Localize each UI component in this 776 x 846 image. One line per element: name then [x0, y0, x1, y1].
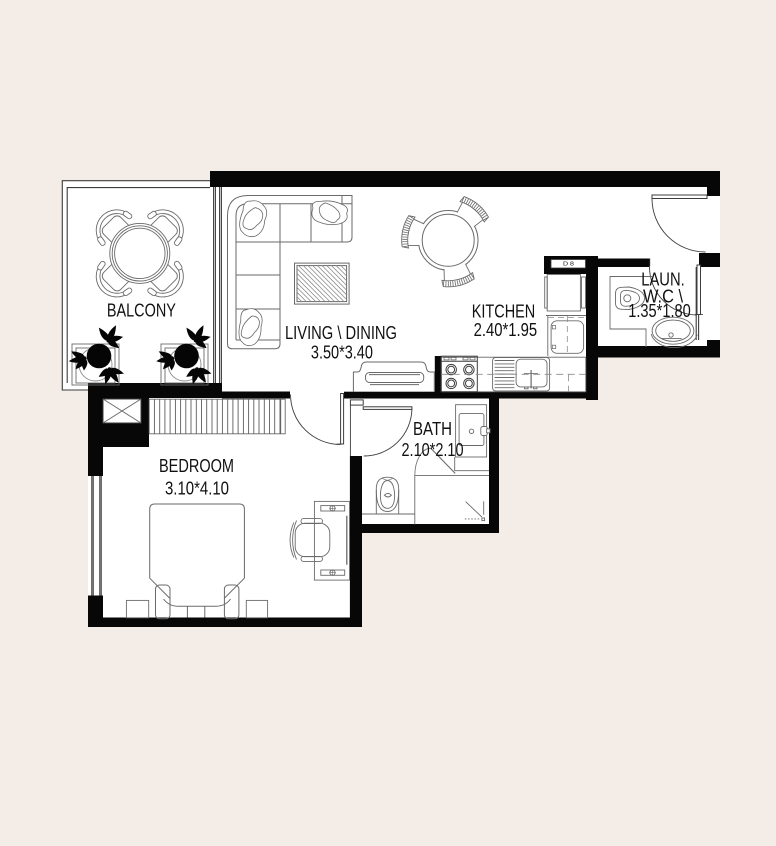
svg-text:3.10*4.10: 3.10*4.10	[165, 478, 229, 499]
svg-text:D 8: D 8	[563, 262, 574, 268]
svg-text:2.10*2.10: 2.10*2.10	[402, 439, 464, 460]
svg-text:3.50*3.40: 3.50*3.40	[311, 341, 373, 362]
svg-text:LIVING \ DINING: LIVING \ DINING	[285, 322, 397, 343]
svg-text:1.35*1.80: 1.35*1.80	[628, 300, 691, 321]
svg-text:2.40*1.95: 2.40*1.95	[474, 319, 538, 340]
svg-text:BATH: BATH	[413, 418, 452, 439]
svg-text:BEDROOM: BEDROOM	[159, 455, 234, 476]
svg-text:BALCONY: BALCONY	[107, 299, 176, 320]
